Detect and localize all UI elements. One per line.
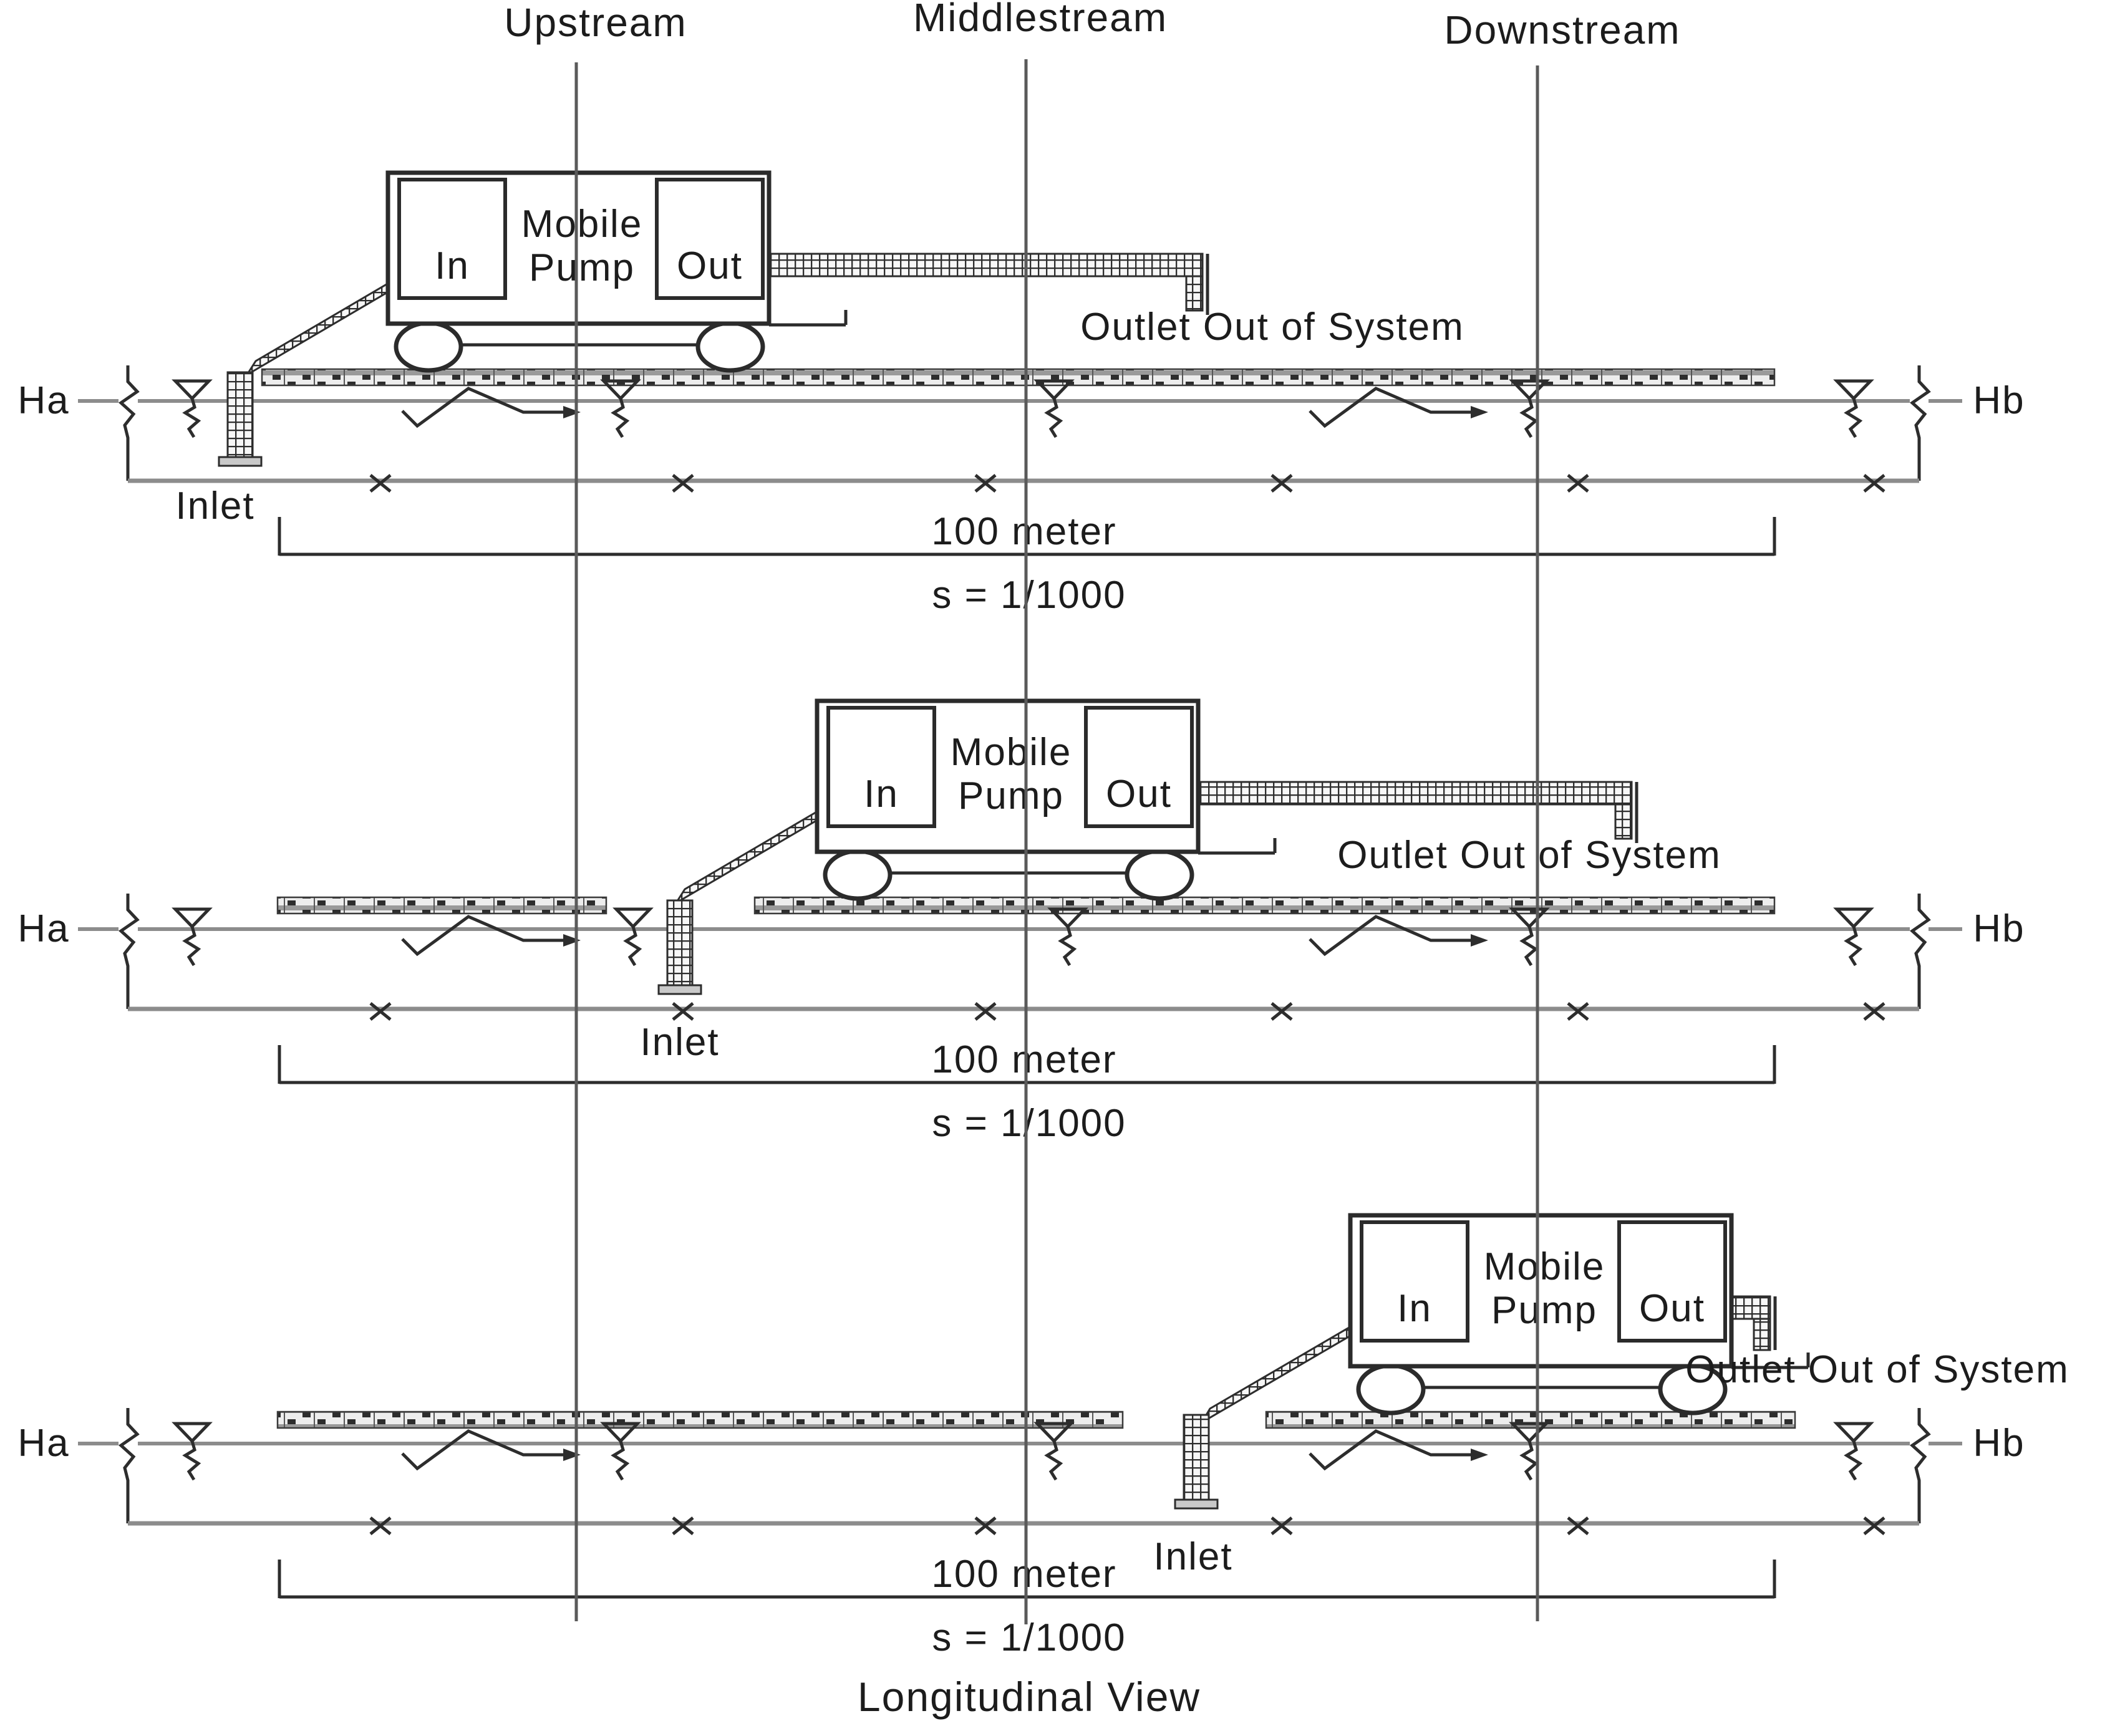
- pump-out-label: Out: [677, 244, 743, 287]
- outlet-hose: [1198, 782, 1632, 804]
- panel-downstream: Ha Hb In Out Mobile Pump Inlet Outlet Ou…: [17, 1215, 2069, 1659]
- flow-direction-arrow-icon: [402, 388, 581, 426]
- label-ha: Ha: [17, 1422, 69, 1465]
- channel-deck-left: [278, 1412, 1123, 1428]
- outlet-label: Outlet Out of System: [1685, 1348, 2069, 1391]
- inlet-label: Inlet: [640, 1021, 719, 1064]
- pump-name-line1: Mobile: [951, 731, 1072, 774]
- inlet-base-plate: [219, 457, 261, 466]
- outlet-elbow: [1754, 1319, 1770, 1350]
- inlet-label: Inlet: [175, 485, 254, 528]
- panel-middlestream: Ha Hb In Out Mobile Pump Inlet Outlet Ou…: [17, 701, 2025, 1145]
- break-line-icon-left: [121, 365, 137, 481]
- suction-hose: [247, 277, 399, 375]
- label-hb: Hb: [1973, 1422, 2025, 1465]
- water-level-icon: [1051, 909, 1085, 965]
- water-level-icon: [1837, 381, 1871, 437]
- outlet-label: Outlet Out of System: [1080, 306, 1464, 349]
- outlet-hose: [769, 254, 1203, 276]
- pump-out-label: Out: [1106, 773, 1172, 816]
- water-level-icon: [604, 381, 637, 437]
- water-level-icon: [1837, 1424, 1871, 1480]
- dimension-label: 100 meter: [931, 510, 1116, 553]
- outlet-hose: [1731, 1296, 1770, 1319]
- water-level-icon: [1837, 909, 1871, 965]
- pump-name-line1: Mobile: [521, 203, 643, 246]
- flow-direction-arrow-icon: [1310, 388, 1488, 426]
- header-downstream: Downstream: [1444, 7, 1680, 52]
- channel-deck-left: [278, 897, 606, 914]
- inlet-label: Inlet: [1153, 1535, 1232, 1578]
- water-level-icon: [616, 909, 650, 965]
- suction-hose: [1202, 1321, 1360, 1422]
- water-level-icon: [175, 381, 209, 437]
- inlet-pipe: [667, 900, 692, 985]
- bottom-x-ticks: [370, 475, 1884, 491]
- slope-label: s = 1/1000: [932, 1616, 1126, 1659]
- inlet-base-plate: [1175, 1500, 1217, 1508]
- flow-direction-arrow-icon: [1310, 917, 1488, 954]
- label-hb: Hb: [1973, 379, 2025, 422]
- pump-name-line2: Pump: [529, 246, 635, 289]
- water-level-icon: [1037, 1424, 1071, 1480]
- flow-direction-arrow-icon: [402, 917, 581, 954]
- dimension-label: 100 meter: [931, 1553, 1116, 1596]
- label-ha: Ha: [17, 907, 69, 950]
- dimension-label: 100 meter: [931, 1038, 1116, 1081]
- water-level-icon: [1512, 1424, 1546, 1480]
- pump-in-label: In: [435, 244, 470, 287]
- label-ha: Ha: [17, 379, 69, 422]
- bottom-x-ticks: [370, 1518, 1884, 1534]
- channel-deck-right: [755, 897, 1774, 914]
- water-level-icon: [1037, 381, 1071, 437]
- water-level-icon: [175, 909, 209, 965]
- pump-in-label: In: [864, 773, 899, 816]
- water-level-icon: [604, 1424, 637, 1480]
- pump-name-line2: Pump: [958, 774, 1064, 817]
- header-middlestream: Middlestream: [913, 0, 1168, 40]
- pump-name-line2: Pump: [1491, 1289, 1597, 1332]
- inlet-pipe: [228, 372, 253, 457]
- break-line-icon-right: [1912, 1408, 1929, 1523]
- bottom-x-ticks: [370, 1003, 1884, 1020]
- longitudinal-view-diagram: Ha Hb In Out Mobile Pump Inlet Outlet Ou…: [0, 0, 2115, 1736]
- pump-in-label: In: [1397, 1287, 1432, 1330]
- break-line-icon-left: [121, 894, 137, 1009]
- water-level-icon: [1512, 381, 1546, 437]
- pump-out-label: Out: [1639, 1287, 1705, 1330]
- inlet-pipe: [1184, 1415, 1209, 1500]
- slope-label: s = 1/1000: [932, 1102, 1126, 1145]
- diagram-caption: Longitudinal View: [858, 1674, 1201, 1720]
- inlet-base-plate: [659, 985, 701, 994]
- outlet-label: Outlet Out of System: [1337, 834, 1721, 877]
- channel-deck: [262, 369, 1774, 385]
- panel-upstream: Ha Hb In Out Mobile Pump Inlet Outlet Ou…: [17, 173, 2025, 617]
- suction-hose: [676, 805, 828, 903]
- header-upstream: Upstream: [504, 0, 687, 45]
- break-line-icon-left: [121, 1408, 137, 1523]
- slope-label: s = 1/1000: [932, 574, 1126, 617]
- pump-name-line1: Mobile: [1484, 1245, 1605, 1288]
- water-level-icon: [1512, 909, 1546, 965]
- water-level-icon: [175, 1424, 209, 1480]
- flow-direction-arrow-icon: [402, 1431, 581, 1468]
- break-line-icon-right: [1912, 365, 1929, 481]
- channel-deck-right: [1266, 1412, 1795, 1428]
- flow-direction-arrow-icon: [1310, 1431, 1488, 1468]
- page: Ha Hb In Out Mobile Pump Inlet Outlet Ou…: [0, 0, 2115, 1736]
- label-hb: Hb: [1973, 907, 2025, 950]
- break-line-icon-right: [1912, 894, 1929, 1009]
